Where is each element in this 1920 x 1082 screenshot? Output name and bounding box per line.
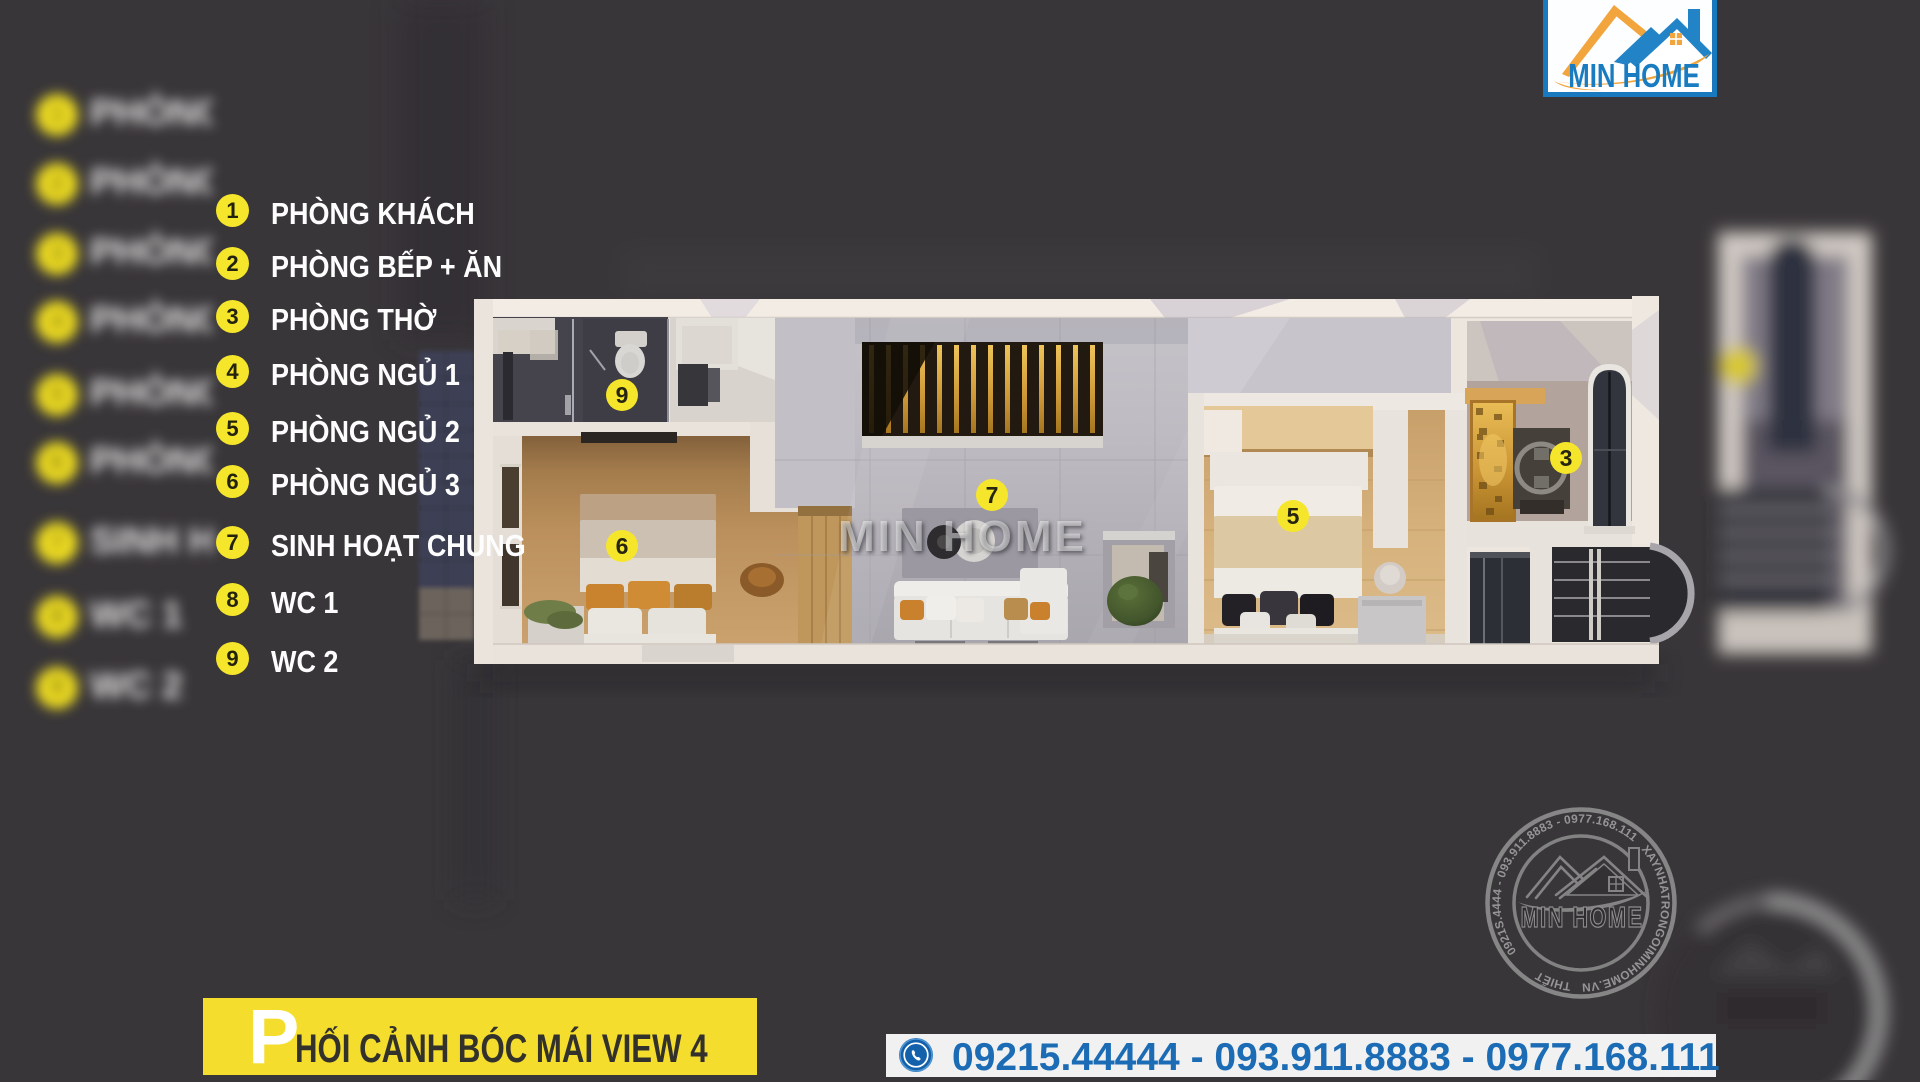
svg-text:7: 7: [986, 482, 999, 508]
svg-text:MIN HOME: MIN HOME: [1521, 902, 1644, 934]
svg-text:6: 6: [616, 533, 629, 559]
svg-text:3: 3: [1560, 445, 1573, 471]
svg-text:5: 5: [1287, 503, 1300, 529]
svg-text:9: 9: [616, 382, 629, 408]
svg-text:MIN HOME: MIN HOME: [1568, 58, 1699, 92]
